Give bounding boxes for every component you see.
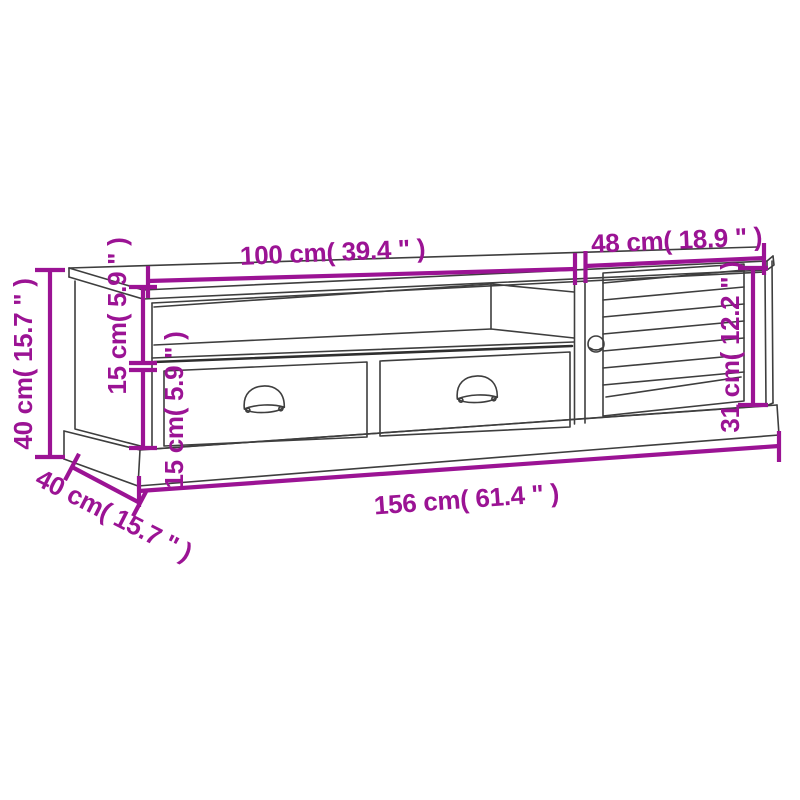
product-dimension-image: 100 cm( 39.4 " ) 48 cm( 18.9 " ) 40 cm( …	[0, 0, 800, 800]
drawer-handle-icon	[243, 385, 284, 413]
door-knob-icon	[588, 336, 604, 352]
dim-label-door-opening-height: 31 cm( 12.2 " )	[715, 261, 745, 432]
dim-label-overall-height: 40 cm( 15.7 " )	[8, 278, 38, 449]
section-divider	[575, 271, 586, 424]
dim-label-open-shelf-height: 15 cm( 5.9 " )	[102, 238, 132, 395]
dim-overall-height: 40 cm( 15.7 " )	[8, 270, 65, 457]
dim-label-right-section-width: 48 cm( 18.9 " )	[590, 221, 762, 258]
dim-label-left-section-width: 100 cm( 39.4 " )	[239, 233, 425, 271]
diagram-canvas: 100 cm( 39.4 " ) 48 cm( 18.9 " ) 40 cm( …	[0, 0, 800, 800]
dim-label-overall-width: 156 cm( 61.4 " )	[373, 478, 560, 521]
dim-door-opening-height: 31 cm( 12.2 " )	[715, 261, 768, 432]
dim-drawer-section-height: 15 cm( 5.9 " )	[129, 332, 189, 489]
dim-overall-width: 156 cm( 61.4 " )	[139, 431, 779, 520]
drawer-right	[380, 352, 570, 436]
dimension-annotations: 100 cm( 39.4 " ) 48 cm( 18.9 " ) 40 cm( …	[8, 221, 779, 567]
dim-label-drawer-section-height: 15 cm( 5.9 " )	[159, 332, 189, 489]
drawer-handle-icon	[456, 375, 497, 403]
drawer-left	[164, 362, 367, 446]
